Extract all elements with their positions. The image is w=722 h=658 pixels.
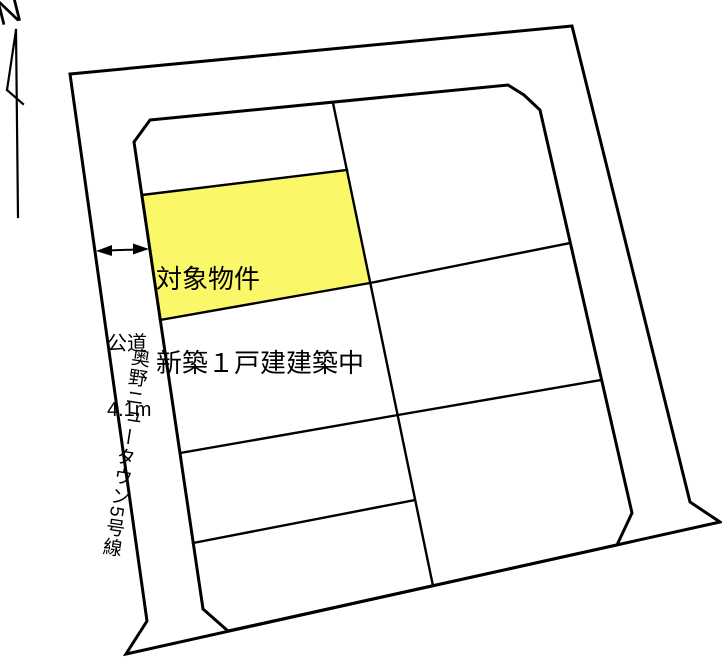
road-width-arrow-shaft: [108, 250, 137, 251]
target-parcel-label-line2: 新築１戸建建築中: [156, 349, 364, 377]
divider-row-3: [193, 500, 415, 543]
north-arrow-icon: [7, 30, 23, 217]
road-width-arrowhead-left: [96, 245, 112, 256]
plot-map: N 対象物件 新築１戸建建築中 公道 4.1m 奥野ニュータウン5号線: [0, 0, 722, 658]
target-parcel-label-line1: 対象物件: [156, 265, 364, 293]
target-parcel-label: 対象物件 新築１戸建建築中: [156, 209, 364, 433]
road-width-arrowhead-right: [133, 244, 149, 255]
